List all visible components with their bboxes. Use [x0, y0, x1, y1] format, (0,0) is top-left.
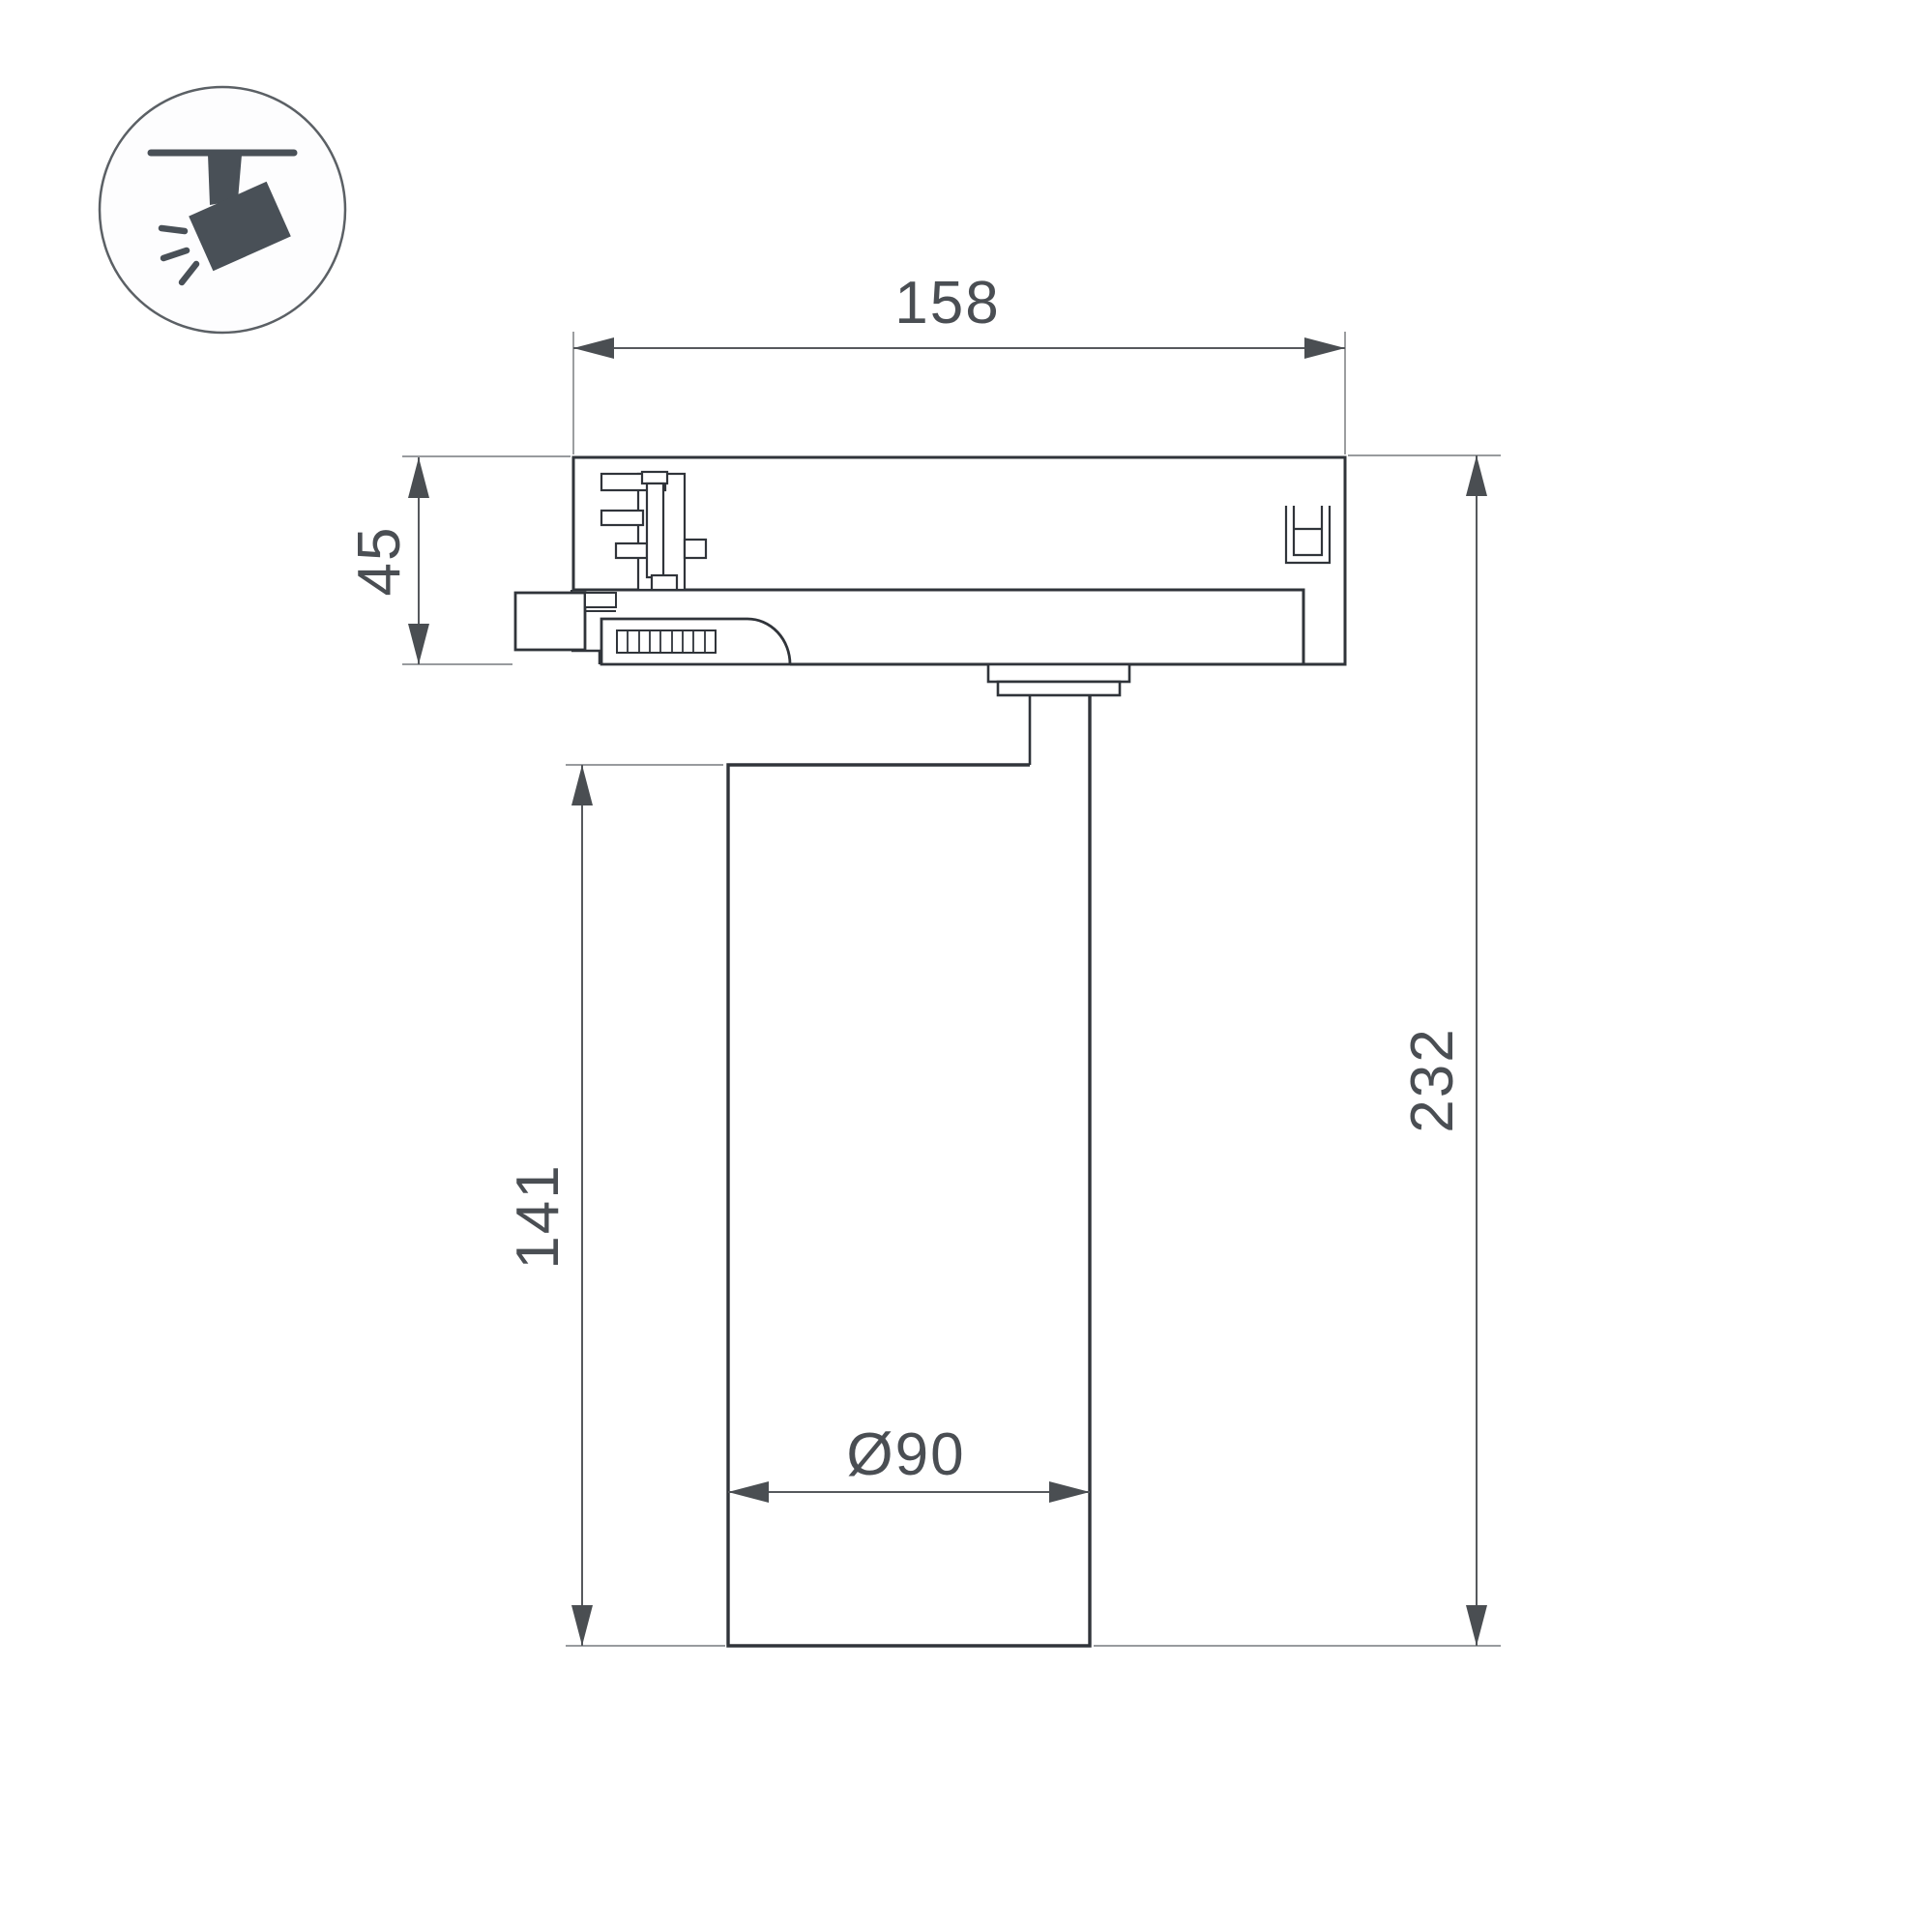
flange-lower [998, 682, 1120, 695]
dimension-body-diameter: Ø90 [728, 1421, 1090, 1503]
dimension-total-height: 232 [1094, 455, 1501, 1646]
arrowhead-left [573, 337, 614, 359]
dimension-label: 141 [505, 1163, 571, 1269]
arrowhead-bottom [571, 1605, 593, 1646]
arrowhead-right [1304, 337, 1345, 359]
drawing-svg: 158 45 141 232 Ø90 [0, 0, 1932, 1932]
contact-pin [647, 483, 663, 577]
flange-upper [988, 664, 1129, 682]
arrowhead-bottom [408, 624, 429, 664]
latch-tongue [585, 593, 616, 607]
dimension-body-height: 141 [505, 765, 725, 1646]
arrowhead-top [571, 765, 593, 805]
contact-prong-bottom [616, 543, 647, 558]
latch-block [515, 593, 585, 650]
grip-ribs-frame [617, 630, 716, 653]
dimension-label: 232 [1399, 1027, 1466, 1132]
adapter-lower-section [515, 590, 1303, 664]
contact-prong-middle [601, 511, 643, 525]
contact-pin-foot [652, 575, 677, 590]
dimension-adapter-width: 158 [573, 270, 1345, 454]
arrowhead-right [1049, 1481, 1090, 1503]
arrowhead-top [1466, 455, 1487, 496]
arrowhead-left [728, 1481, 769, 1503]
arrowhead-bottom [1466, 1605, 1487, 1646]
technical-drawing-page: 158 45 141 232 Ø90 [0, 0, 1932, 1932]
track-spotlight-icon [100, 87, 345, 333]
bottom-step [571, 651, 600, 664]
contact-pin-cap [642, 472, 667, 483]
dimension-label: 45 [346, 526, 413, 597]
swivel-joint [988, 664, 1129, 765]
dimension-label: Ø90 [846, 1421, 965, 1488]
dimension-label: 158 [894, 270, 1000, 337]
arrowhead-top [408, 457, 429, 498]
track-adapter [515, 457, 1345, 765]
contact-side-tab [685, 540, 706, 558]
lamp-body-outline [728, 695, 1090, 1646]
